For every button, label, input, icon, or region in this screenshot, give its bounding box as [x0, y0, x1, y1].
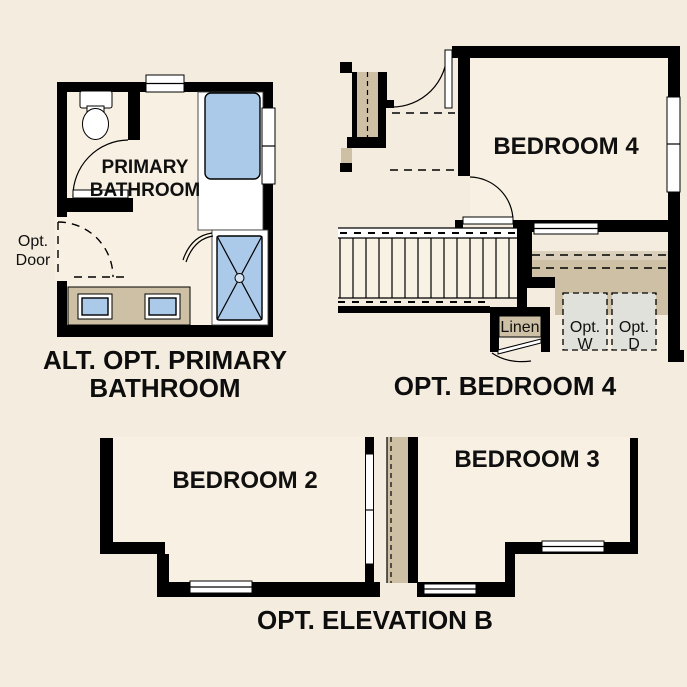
- bedroom3-bottom-window: [542, 541, 604, 552]
- bedroom2-room: [113, 437, 366, 583]
- elevation-caption: OPT. ELEVATION B: [180, 606, 570, 634]
- bedroom3-label: BEDROOM 3: [454, 446, 599, 473]
- sink: [145, 294, 180, 319]
- primary-bathroom-label: PRIMARY: [102, 157, 189, 178]
- svg-text:Opt.: Opt.: [619, 319, 649, 336]
- bathroom-top-window: [146, 75, 184, 92]
- linen-closet: Linen: [490, 307, 550, 362]
- bathroom-side-window: [262, 108, 275, 184]
- closet-opening-dashed: [390, 113, 455, 170]
- hall-door-swing: [392, 50, 452, 108]
- vanity: [68, 287, 190, 325]
- dryer-box: Opt. D: [612, 293, 656, 353]
- svg-text:D: D: [628, 336, 640, 353]
- primary-bathroom-label: BATHROOM: [90, 180, 200, 201]
- bedroom2-label: BEDROOM 2: [172, 467, 317, 494]
- bedroom3-lower-window: [424, 584, 476, 594]
- floor-plan-sheet: PRIMARY BATHROOM Opt. Door ALT. OPT. PRI…: [0, 0, 687, 687]
- shower: [212, 230, 268, 325]
- bedroom4-label: BEDROOM 4: [493, 133, 639, 160]
- svg-text:Opt.: Opt.: [570, 319, 600, 336]
- bedroom4-right-window: [667, 97, 680, 192]
- opt-door-label: Opt.: [18, 233, 48, 250]
- bathroom-floor-plan: PRIMARY BATHROOM Opt. Door: [14, 70, 280, 340]
- roof-chase-strip: [387, 437, 408, 583]
- linen-door: [492, 339, 541, 362]
- bedroom2-bottom-window: [190, 581, 252, 593]
- bedroom4-floor-plan: Opt. W Opt. D Linen: [338, 40, 687, 370]
- elevation-b-floor-plan: BEDROOM 2 BEDROOM 3: [90, 425, 687, 605]
- washer-box: Opt. W: [563, 293, 607, 353]
- opt-door-label: Door: [16, 252, 51, 269]
- closet-shelf-band: [532, 251, 668, 277]
- bedroom4-caption: OPT. BEDROOM 4: [345, 372, 665, 400]
- bathroom-caption: ALT. OPT. PRIMARY BATHROOM: [20, 346, 310, 402]
- svg-text:W: W: [577, 336, 593, 353]
- linen-label: Linen: [500, 319, 539, 336]
- bedroom4-bottom-window: [534, 223, 598, 234]
- bedroom2-side-window: [366, 454, 374, 564]
- bathtub: [198, 92, 263, 230]
- sink: [78, 294, 112, 319]
